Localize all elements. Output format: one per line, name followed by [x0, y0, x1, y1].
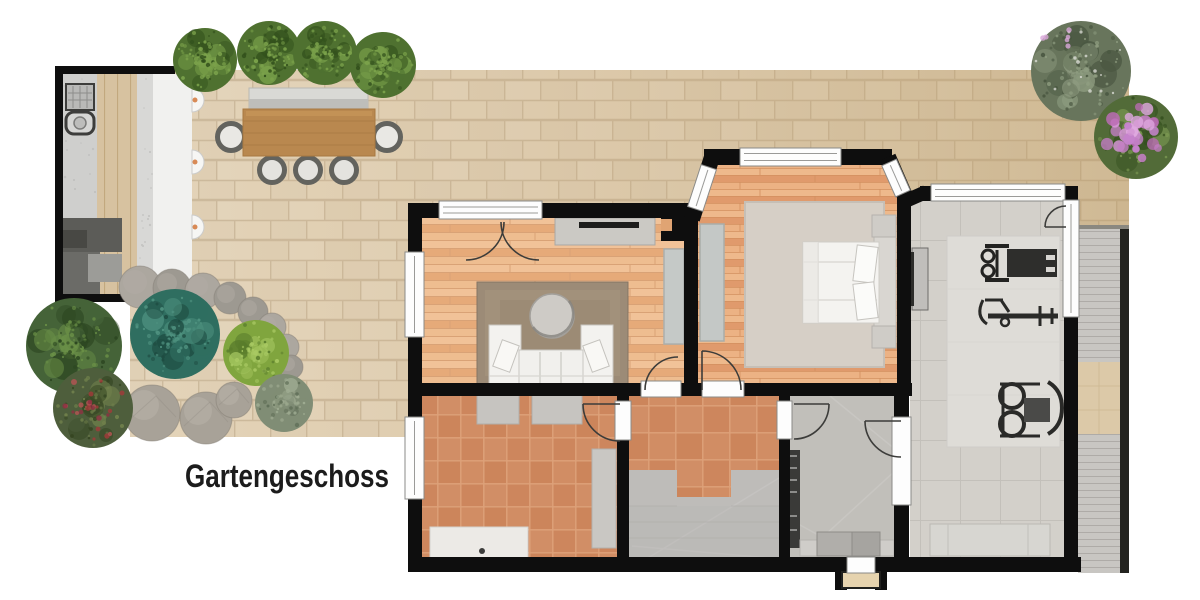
svg-text:Gartengeschoss: Gartengeschoss: [185, 458, 389, 494]
